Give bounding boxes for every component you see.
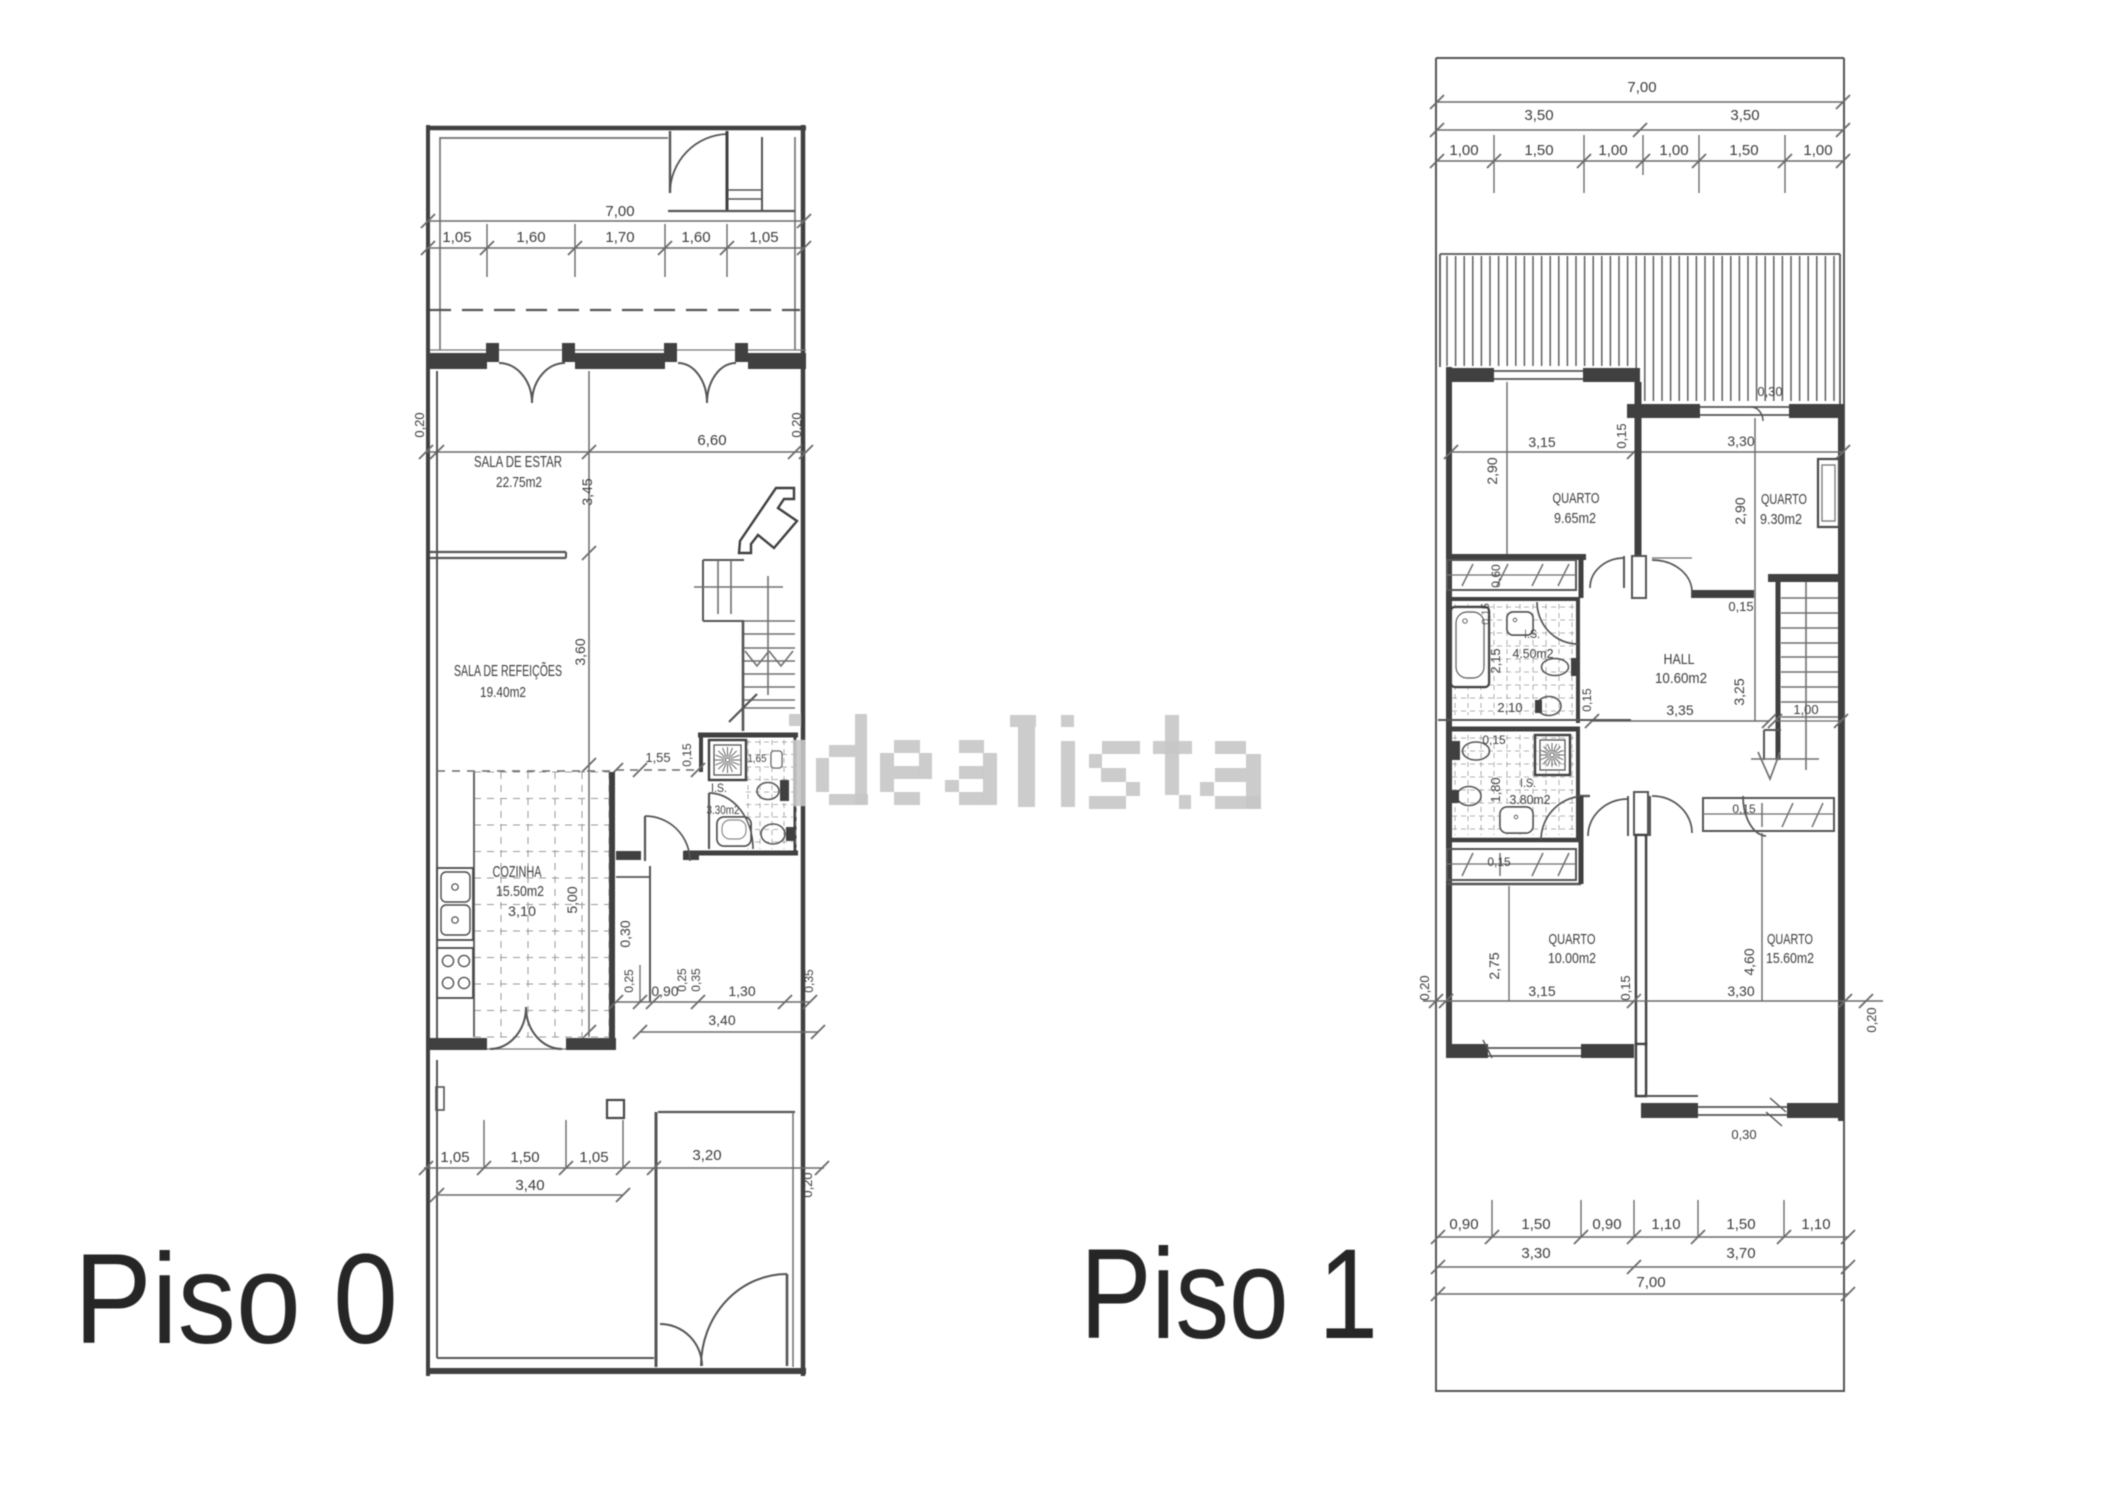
svg-text:1,60: 1,60 [681, 229, 710, 246]
svg-text:0,20: 0,20 [1417, 975, 1432, 1000]
svg-text:3,35: 3,35 [1666, 702, 1693, 718]
svg-text:1,55: 1,55 [645, 750, 670, 765]
svg-text:SALA DE ESTAR: SALA DE ESTAR [474, 454, 562, 471]
svg-text:15.60m2: 15.60m2 [1766, 950, 1814, 967]
svg-text:0,30: 0,30 [617, 920, 633, 947]
svg-text:1,30: 1,30 [728, 983, 755, 999]
svg-text:3,20: 3,20 [692, 1147, 721, 1164]
svg-text:1,80: 1,80 [1488, 777, 1503, 802]
svg-text:5,00: 5,00 [564, 886, 580, 913]
svg-text:7,00: 7,00 [605, 203, 634, 220]
svg-text:3,30: 3,30 [1727, 433, 1754, 449]
svg-text:4.50m2: 4.50m2 [1513, 646, 1554, 661]
svg-text:1,50: 1,50 [1524, 142, 1553, 159]
svg-text:SALA DE REFEIÇÕES: SALA DE REFEIÇÕES [454, 660, 562, 680]
svg-text:0,15: 0,15 [1482, 733, 1506, 747]
svg-text:0,60: 0,60 [1489, 564, 1503, 588]
svg-text:0,20: 0,20 [789, 412, 804, 437]
svg-text:3,10: 3,10 [508, 903, 536, 919]
svg-text:3,60: 3,60 [572, 638, 588, 665]
svg-text:2,75: 2,75 [1486, 952, 1502, 979]
svg-text:1,10: 1,10 [1801, 1216, 1830, 1233]
svg-text:0,20: 0,20 [412, 412, 427, 437]
svg-text:3,50: 3,50 [1730, 107, 1759, 124]
svg-text:Piso 0: Piso 0 [74, 1228, 398, 1371]
svg-text:0,25: 0,25 [675, 968, 689, 992]
svg-text:1,00: 1,00 [1598, 142, 1627, 159]
svg-text:3,30: 3,30 [1727, 983, 1754, 999]
svg-text:QUARTO: QUARTO [1767, 931, 1813, 948]
svg-text:10.00m2: 10.00m2 [1548, 950, 1596, 967]
svg-text:1,50: 1,50 [1729, 142, 1758, 159]
svg-text:6,60: 6,60 [697, 432, 726, 449]
svg-text:1,05: 1,05 [579, 1149, 608, 1166]
svg-text:0,90: 0,90 [1592, 1216, 1621, 1233]
svg-text:1,05: 1,05 [442, 229, 471, 246]
svg-text:0,35: 0,35 [802, 969, 816, 993]
svg-text:19.40m2: 19.40m2 [480, 684, 526, 701]
svg-text:1,00: 1,00 [1449, 142, 1478, 159]
svg-text:2,90: 2,90 [1484, 457, 1500, 484]
svg-text:4,60: 4,60 [1741, 948, 1757, 975]
svg-text:0,15: 0,15 [1580, 688, 1594, 712]
svg-text:1,50: 1,50 [510, 1149, 539, 1166]
svg-text:1,50: 1,50 [1521, 1216, 1550, 1233]
svg-text:0,15: 0,15 [1480, 603, 1492, 624]
svg-text:3.30m2: 3.30m2 [707, 803, 740, 817]
svg-text:1,05: 1,05 [440, 1149, 469, 1166]
svg-text:1,00: 1,00 [1793, 702, 1818, 717]
svg-text:0,30: 0,30 [1757, 384, 1782, 399]
svg-text:3.80m2: 3.80m2 [1510, 792, 1551, 807]
svg-text:0,20: 0,20 [1864, 1007, 1879, 1032]
svg-text:2,15: 2,15 [1488, 648, 1503, 673]
svg-text:3,40: 3,40 [708, 1012, 735, 1028]
svg-text:I.S.: I.S. [1520, 776, 1536, 790]
svg-text:0,25: 0,25 [622, 969, 636, 993]
svg-text:COZINHA: COZINHA [493, 864, 542, 881]
svg-text:QUARTO: QUARTO [1553, 490, 1600, 507]
svg-text:0,15: 0,15 [1618, 975, 1633, 1000]
svg-text:9.30m2: 9.30m2 [1760, 511, 1802, 528]
svg-text:10.60m2: 10.60m2 [1655, 670, 1707, 687]
svg-text:0,90: 0,90 [1449, 1216, 1478, 1233]
svg-text:2,10: 2,10 [1497, 700, 1522, 715]
svg-text:7,00: 7,00 [1627, 79, 1656, 96]
svg-text:QUARTO: QUARTO [1549, 931, 1596, 948]
svg-text:HALL: HALL [1664, 651, 1695, 668]
svg-text:1,65: 1,65 [748, 753, 767, 765]
svg-text:2,90: 2,90 [1732, 497, 1748, 524]
svg-text:3,30: 3,30 [1521, 1245, 1550, 1262]
svg-text:QUARTO: QUARTO [1761, 491, 1807, 508]
svg-text:0,30: 0,30 [1731, 1127, 1756, 1142]
svg-text:0,15: 0,15 [1614, 423, 1629, 448]
svg-text:9.65m2: 9.65m2 [1554, 510, 1596, 527]
svg-text:0,15: 0,15 [1728, 599, 1753, 614]
svg-text:0,35: 0,35 [689, 968, 703, 992]
svg-text:3,45: 3,45 [579, 478, 595, 505]
svg-text:3,15: 3,15 [1528, 434, 1555, 450]
svg-text:3,15: 3,15 [1528, 983, 1555, 999]
svg-text:Piso 1: Piso 1 [1080, 1223, 1378, 1366]
svg-text:3,70: 3,70 [1726, 1245, 1755, 1262]
svg-text:I.S.: I.S. [1524, 627, 1540, 641]
svg-text:0,15: 0,15 [1487, 855, 1511, 869]
svg-text:7,00: 7,00 [1636, 1274, 1665, 1291]
svg-text:1,05: 1,05 [749, 229, 778, 246]
svg-text:3,40: 3,40 [515, 1177, 544, 1194]
svg-text:1,10: 1,10 [1651, 1216, 1680, 1233]
svg-text:15.50m2: 15.50m2 [496, 883, 544, 900]
svg-text:0,15: 0,15 [680, 743, 694, 767]
svg-text:3,50: 3,50 [1524, 107, 1553, 124]
svg-text:22.75m2: 22.75m2 [496, 474, 542, 491]
svg-text:1,60: 1,60 [516, 229, 545, 246]
svg-text:1,70: 1,70 [605, 229, 634, 246]
svg-text:0,20: 0,20 [800, 1172, 815, 1197]
svg-text:1,00: 1,00 [1659, 142, 1688, 159]
svg-text:1,50: 1,50 [1726, 1216, 1755, 1233]
svg-text:1,00: 1,00 [1803, 142, 1832, 159]
svg-text:3,25: 3,25 [1731, 678, 1747, 705]
